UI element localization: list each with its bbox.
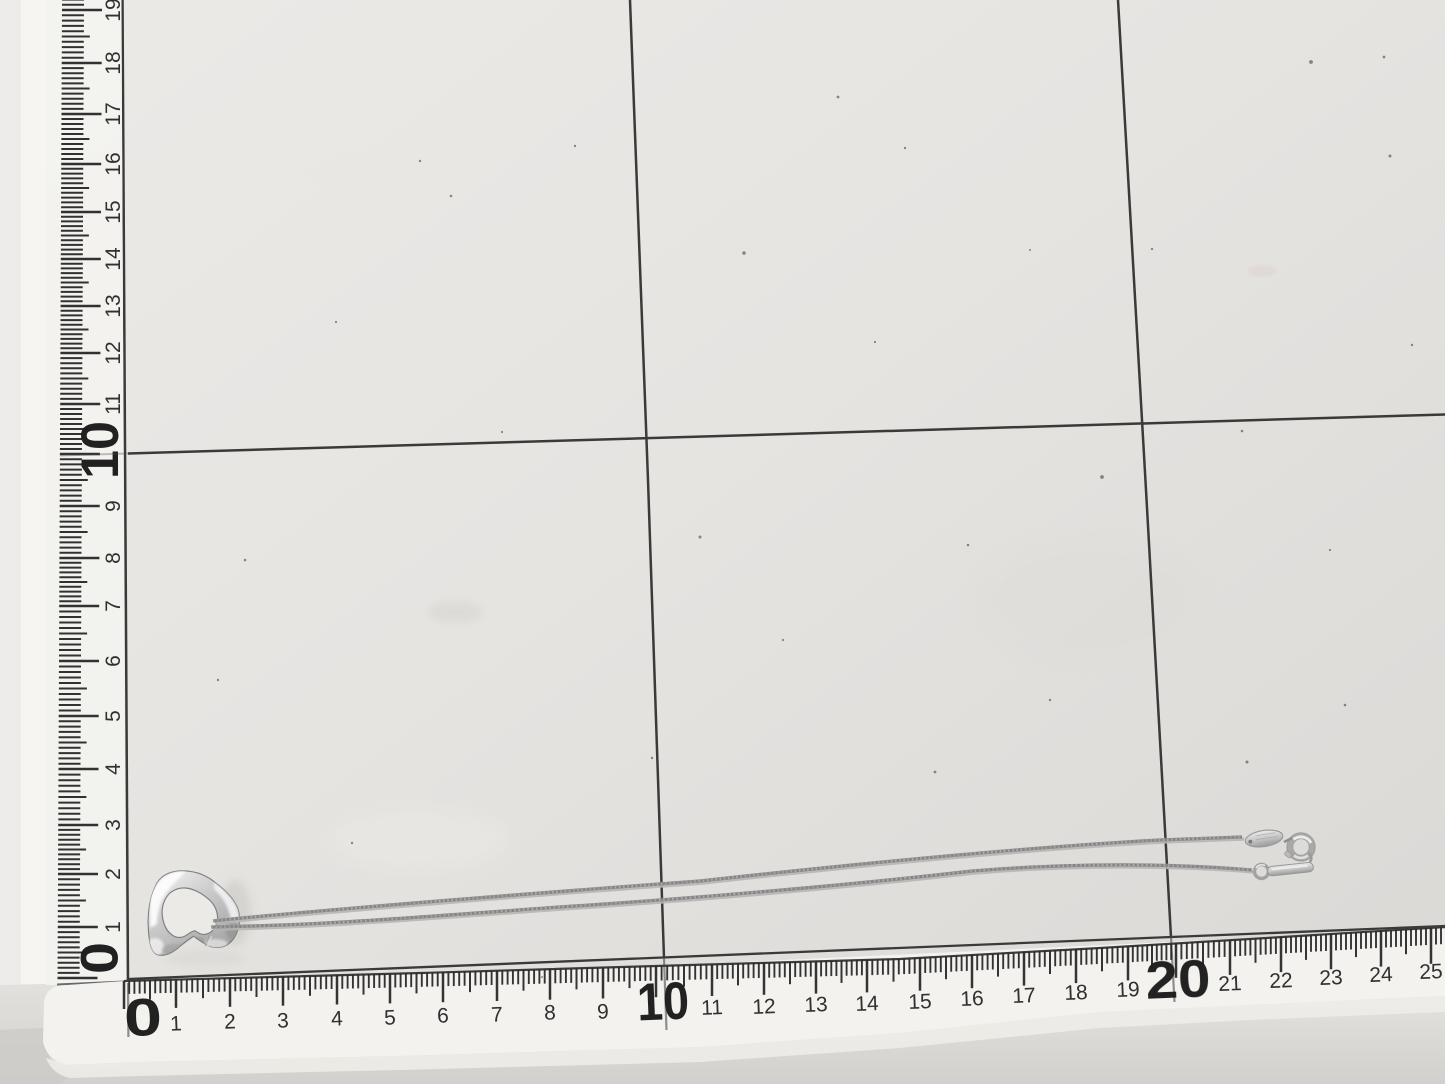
svg-text:13: 13 [804,993,828,1017]
svg-text:14: 14 [855,992,880,1016]
svg-text:22: 22 [1269,969,1293,993]
svg-text:0: 0 [123,988,163,1048]
svg-text:6: 6 [437,1004,450,1027]
svg-text:11: 11 [102,393,125,415]
svg-text:15: 15 [908,990,932,1014]
svg-text:16: 16 [102,152,125,175]
svg-text:4: 4 [102,763,125,775]
svg-text:2: 2 [102,868,125,880]
svg-text:18: 18 [102,51,125,74]
svg-text:14: 14 [102,247,125,271]
svg-text:23: 23 [1319,966,1343,990]
svg-text:4: 4 [331,1007,344,1030]
svg-text:7: 7 [491,1003,504,1026]
svg-text:24: 24 [1369,963,1394,987]
svg-text:3: 3 [102,819,125,831]
svg-text:8: 8 [544,1001,557,1024]
svg-text:19: 19 [102,0,125,22]
svg-text:2: 2 [224,1010,237,1033]
svg-text:25: 25 [1419,960,1443,984]
svg-text:10: 10 [636,971,690,1032]
svg-text:16: 16 [960,987,984,1011]
svg-text:18: 18 [1064,981,1088,1005]
svg-text:21: 21 [1218,972,1242,996]
svg-text:13: 13 [102,294,125,317]
svg-text:9: 9 [102,500,125,512]
svg-text:19: 19 [1116,978,1140,1002]
svg-text:20: 20 [1144,949,1211,1011]
svg-text:5: 5 [384,1006,397,1029]
svg-text:10: 10 [71,421,130,479]
svg-text:9: 9 [597,1000,610,1023]
svg-text:7: 7 [102,600,125,612]
svg-text:5: 5 [102,710,125,722]
svg-text:17: 17 [1012,984,1036,1008]
svg-text:0: 0 [71,942,130,974]
svg-text:3: 3 [277,1009,290,1032]
svg-text:12: 12 [752,995,776,1019]
svg-text:1: 1 [102,921,125,933]
svg-text:12: 12 [102,341,125,364]
svg-text:8: 8 [102,552,125,564]
svg-text:17: 17 [102,102,125,125]
svg-text:1: 1 [170,1012,183,1035]
svg-text:6: 6 [102,655,125,667]
svg-text:15: 15 [102,200,125,223]
svg-text:11: 11 [701,996,724,1020]
